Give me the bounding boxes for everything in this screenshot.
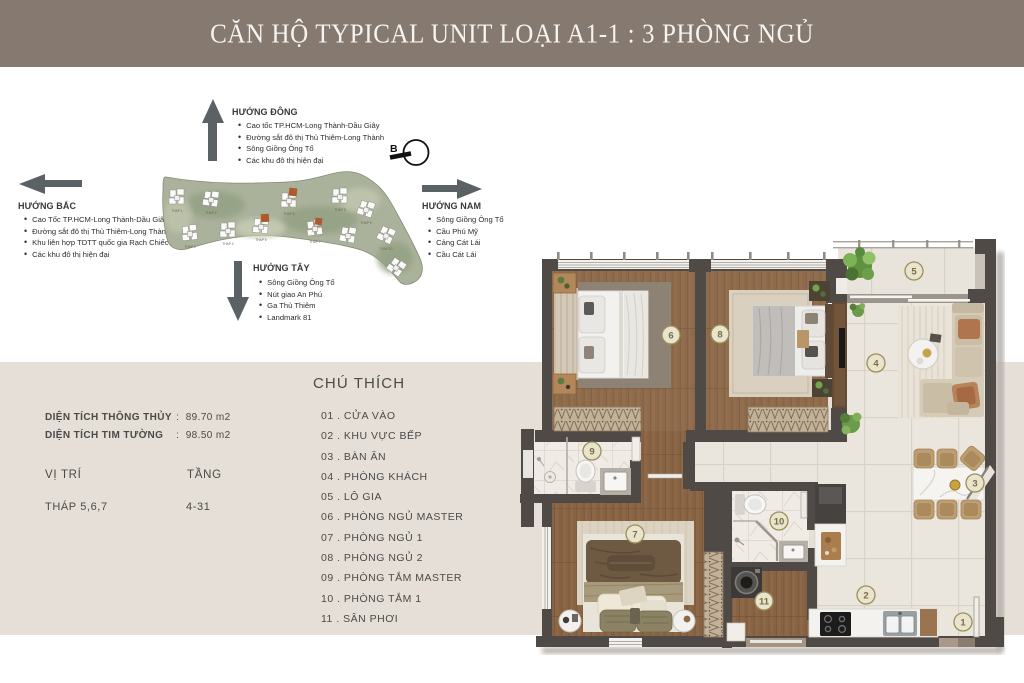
svg-text:THAP 4: THAP 4 [222,242,233,246]
svg-text:THAP 1: THAP 1 [171,209,182,213]
svg-text:9: 9 [589,447,594,458]
svg-text:1: 1 [960,618,966,629]
svg-text:7: 7 [632,530,637,541]
svg-text:11: 11 [759,597,770,608]
svg-text:THAP 2: THAP 2 [205,211,216,215]
svg-text:6: 6 [668,331,673,342]
svg-text:THAP 7: THAP 7 [309,240,320,244]
svg-text:THAP 5: THAP 5 [255,238,266,242]
svg-text:10: 10 [774,517,785,528]
svg-text:3: 3 [972,479,977,490]
svg-text:THAP 3: THAP 3 [184,245,195,249]
svg-text:THAP 8: THAP 8 [334,208,345,212]
svg-text:4: 4 [873,359,879,370]
svg-text:THAP 10: THAP 10 [380,247,393,251]
svg-text:5: 5 [911,267,917,278]
svg-text:2: 2 [863,591,868,602]
svg-text:B: B [390,143,398,155]
svg-text:8: 8 [717,330,722,341]
svg-text:THAP 6: THAP 6 [283,212,294,216]
svg-text:THAP 9: THAP 9 [360,221,371,225]
